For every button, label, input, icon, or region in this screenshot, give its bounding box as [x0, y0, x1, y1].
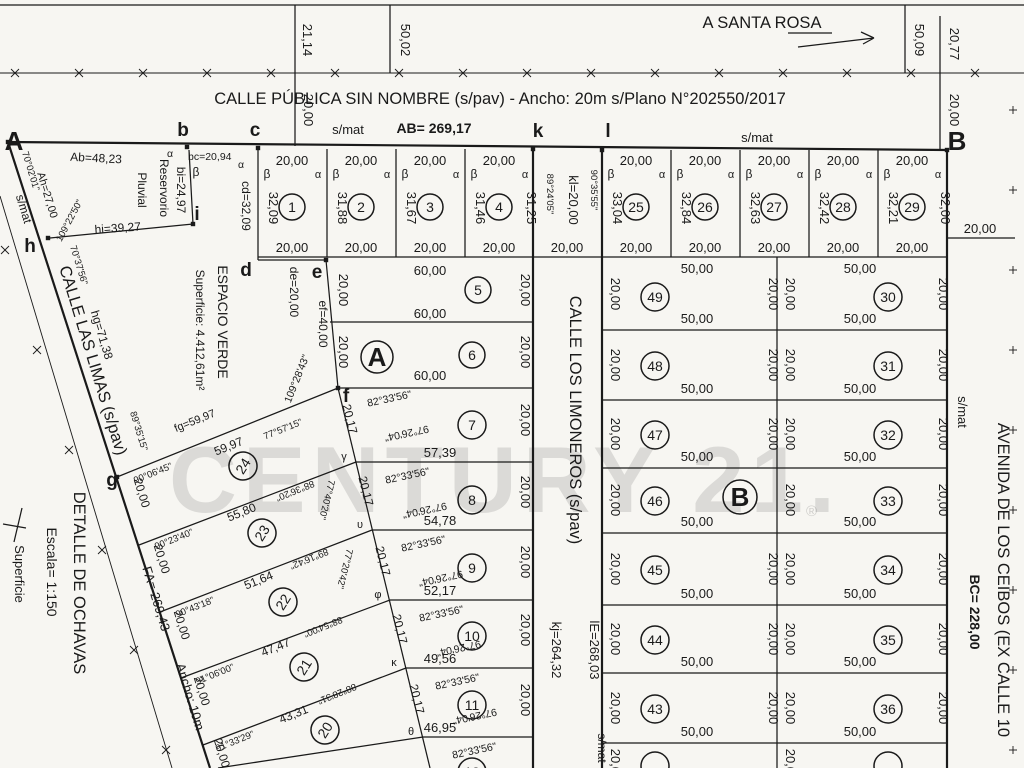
- lot-1-bottom: 20,00: [276, 240, 309, 255]
- lot-48-left-depth: 20,00: [608, 349, 623, 382]
- lot-27-beta: β: [746, 167, 753, 181]
- lot-35-number: 35: [880, 632, 896, 648]
- street-title-calle-publica: CALLE PÚBLICA SIN NOMBRE (s/pav) - Ancho…: [214, 89, 786, 108]
- lot-31-right-depth: 20,00: [936, 349, 951, 382]
- lot-35-left-depth: 20,00: [783, 623, 798, 656]
- lot-10-left-side: 20,17: [389, 613, 410, 646]
- lot-25-bottom: 20,00: [620, 240, 653, 255]
- point-A: A: [5, 126, 24, 156]
- lot-3-number: 3: [426, 199, 434, 215]
- lot-11-left-side: 20,17: [406, 683, 427, 716]
- hi-edge-length: hi=39,27: [94, 219, 142, 236]
- lot-6-left-depth: 20,00: [336, 336, 351, 369]
- lot-4-beta: β: [471, 167, 478, 181]
- lot-8-right-depth: 20,00: [518, 476, 533, 509]
- lot-49-top-width: 50,00: [681, 261, 714, 276]
- dim-20-77: 20,77: [947, 28, 962, 61]
- s-mat-avenida: s/mat: [955, 396, 970, 428]
- s-mat-baseline-left: s/mat: [332, 122, 364, 137]
- lot-25-top: 20,00: [620, 153, 653, 168]
- lot-49-right-depth: 20,00: [766, 278, 781, 311]
- lot-9-number: 9: [468, 560, 476, 576]
- lot-1-alpha: α: [315, 169, 322, 181]
- lot-1-number: 1: [288, 199, 296, 215]
- point-d: d: [240, 260, 252, 281]
- vertex-theta: θ: [408, 726, 414, 738]
- lot-36-left-depth: 20,00: [783, 692, 798, 725]
- lot-32-bottom-width: 50,00: [844, 449, 877, 464]
- lot-27-number: 27: [766, 199, 782, 215]
- lot-29-beta: β: [884, 167, 891, 181]
- lot-36-bottom-width: 50,00: [844, 724, 877, 739]
- lot-28-top: 20,00: [827, 153, 860, 168]
- lot-31-bottom-width: 50,00: [844, 381, 877, 396]
- alpha-at-c: α: [238, 159, 244, 171]
- partial-row-depth-right: 20,00: [783, 749, 798, 768]
- lot-48-number: 48: [647, 358, 663, 374]
- lot-33-right-depth: 20,00: [936, 484, 951, 517]
- lot-3-alpha: α: [453, 169, 460, 181]
- lot-44-bottom-width: 50,00: [681, 654, 714, 669]
- fa-length: FA= 269,43: [139, 565, 173, 633]
- lot-49-bottom-width: 50,00: [681, 311, 714, 326]
- lot-32-number: 32: [880, 427, 896, 443]
- lot-43-bottom-width: 50,00: [681, 724, 714, 739]
- lot-3-beta: β: [402, 167, 409, 181]
- lot-27-bottom: 20,00: [758, 240, 791, 255]
- lot-22-top-length: 51,64: [242, 568, 275, 592]
- lot-7-bottom-length: 57,39: [424, 445, 457, 460]
- lot-30-bottom-width: 50,00: [844, 311, 877, 326]
- avenida-name: AVENIDA DE LOS CEIBOS (EX CALLE 10: [994, 423, 1012, 737]
- alpha-at-b: α: [167, 148, 173, 160]
- lot-32-left-depth: 20,00: [783, 418, 798, 451]
- lot-4-alpha: α: [522, 169, 529, 181]
- lot-43-right-depth: 20,00: [766, 692, 781, 725]
- lot-45-bottom-width: 50,00: [681, 586, 714, 601]
- lot-44-right-depth: 20,00: [766, 623, 781, 656]
- lot-7-right-depth: 20,00: [518, 404, 533, 437]
- lot-36-number: 36: [880, 701, 896, 717]
- lot-49-left-depth: 20,00: [608, 278, 623, 311]
- lot-26-bottom: 20,00: [689, 240, 722, 255]
- point-h: h: [24, 236, 36, 257]
- lot-43-number: 43: [647, 701, 663, 717]
- lot-9-bottom-length: 52,17: [424, 583, 457, 598]
- lot-10-number: 10: [464, 628, 480, 644]
- lot-36-right-depth: 20,00: [936, 692, 951, 725]
- espacio-verde-superficie: Superficie: 4.412,61m²: [193, 270, 207, 391]
- angle-at-g: 89°35'15": [127, 410, 149, 452]
- reservorio-name-1: Reservorio: [157, 159, 171, 217]
- street-name-las-limas: CALLE LAS LIMAS (s/pav): [55, 264, 130, 458]
- lot-35-right-depth: 20,00: [936, 623, 951, 656]
- bi-edge-length: bi=24,97: [174, 167, 188, 214]
- lot-9-right-depth: 20,00: [518, 546, 533, 579]
- lot-7-number: 7: [468, 417, 476, 433]
- lot-31-number: 31: [880, 358, 896, 374]
- avenida-de-los-ceibos: s/mat BC= 228,00 AVENIDA DE LOS CEIBOS (…: [955, 106, 1017, 754]
- lot-5-left-depth: 20,00: [336, 274, 351, 307]
- lot-5-bottom-length: 60,00: [414, 306, 447, 321]
- lot-11-angle-top: 82°33'56": [434, 671, 481, 692]
- lot-33-number: 33: [880, 493, 896, 509]
- lot-34-right-depth: 20,00: [936, 553, 951, 586]
- direction-santa-rosa: A SANTA ROSA: [703, 14, 822, 32]
- lot-29-bottom: 20,00: [896, 240, 929, 255]
- point-g: g: [106, 470, 118, 491]
- lot-26-beta: β: [677, 167, 684, 181]
- detalle-de-ochavas: DETALLE DE OCHAVAS Escala= 1:150 Superfi…: [3, 492, 88, 674]
- de-length: de=20,00: [287, 267, 301, 318]
- lot-6-right-depth: 20,00: [518, 336, 533, 369]
- watermark-registered-icon: ®: [806, 503, 817, 520]
- street-width: 20,00: [551, 240, 584, 255]
- lot-30-left-depth: 20,00: [783, 278, 798, 311]
- lot-35-bottom-width: 50,00: [844, 654, 877, 669]
- lot-33-bottom-width: 50,00: [844, 514, 877, 529]
- cadastral-plan: CENTURY 21. ® 21,14 50,02 20,00 50,09 20…: [0, 0, 1024, 768]
- street-name-limoneros: CALLE LOS LIMONEROS (s/pav): [566, 296, 584, 545]
- lot-47-right-depth: 20,00: [766, 418, 781, 451]
- outside-right-dim: 20,00: [964, 221, 997, 236]
- lot-49-number: 49: [647, 289, 663, 305]
- detalle-escala: Escala= 1:150: [44, 527, 60, 616]
- vertex-gamma: γ: [341, 451, 347, 463]
- lot-47-left-depth: 20,00: [608, 418, 623, 451]
- lot-28-number: 28: [835, 199, 851, 215]
- lot-45-number: 45: [647, 562, 663, 578]
- lot-4-top: 20,00: [483, 153, 516, 168]
- lot-9-left-side: 20,17: [372, 545, 393, 578]
- dim-50-02: 50,02: [398, 24, 413, 57]
- ab-edge-length: Ab=48,23: [70, 150, 123, 167]
- lot-45-left-depth: 20,00: [608, 553, 623, 586]
- point-i: i: [194, 204, 199, 225]
- lot-46-number: 46: [647, 493, 663, 509]
- lot-10-right-depth: 20,00: [518, 614, 533, 647]
- lot-24-street-side: 20,00: [131, 476, 153, 509]
- lot-10-angle-top: 82°33'56": [418, 603, 465, 624]
- lot-25-beta: β: [608, 167, 615, 181]
- lot-10-bottom-length: 49,56: [424, 651, 457, 666]
- lot-31-left-depth: 20,00: [783, 349, 798, 382]
- point-B: B: [948, 126, 967, 156]
- detalle-title: DETALLE DE OCHAVAS: [70, 492, 88, 674]
- lot-3-bottom: 20,00: [414, 240, 447, 255]
- bc-length: BC= 228,00: [967, 574, 983, 649]
- lot-5-right-depth: 20,00: [518, 274, 533, 307]
- lot-29-alpha: α: [935, 169, 942, 181]
- espacio-verde-title: ESPACIO VERDE: [215, 265, 231, 378]
- angle-at-f: 109°28'43": [282, 353, 312, 405]
- beta-at-b: β: [193, 165, 200, 179]
- lot-11-number: 11: [465, 697, 480, 713]
- cadastral-plan-page: CENTURY 21. ® 21,14 50,02 20,00 50,09 20…: [0, 0, 1024, 768]
- point-k: k: [533, 121, 544, 142]
- lot-33-left-depth: 20,00: [783, 484, 798, 517]
- lot-5-top-length: 60,00: [414, 263, 447, 278]
- lot-34-left-depth: 20,00: [783, 553, 798, 586]
- lot-6-bottom-length: 60,00: [414, 368, 447, 383]
- lot-20-number: 20: [314, 719, 336, 741]
- lot-26-top: 20,00: [689, 153, 722, 168]
- lot-44-left-depth: 20,00: [608, 623, 623, 656]
- lot-22-angle-inv: 89°16'42": [288, 546, 330, 571]
- lot-21-number: 21: [293, 656, 315, 678]
- lot-34-bottom-width: 50,00: [844, 586, 877, 601]
- lot-8-bottom-length: 54,78: [424, 513, 457, 528]
- le-length: lE=268,03: [587, 621, 602, 680]
- lot-45-right-depth: 20,00: [766, 553, 781, 586]
- lot-21-top-length: 47,47: [259, 635, 292, 659]
- bc-edge-length: bc=20,94: [188, 151, 232, 163]
- ab-length: AB= 269,17: [396, 120, 471, 136]
- lot-29-right-length: 32,00: [938, 192, 953, 225]
- lot-28-alpha: α: [866, 169, 873, 181]
- lot-25-alpha: α: [659, 169, 666, 181]
- reservorio-name-2: Pluvial: [135, 172, 149, 207]
- lot-46-bottom-width: 50,00: [681, 514, 714, 529]
- lot-28-bottom: 20,00: [827, 240, 860, 255]
- lot-26-number: 26: [697, 199, 713, 215]
- lot-4-right-length: 31,25: [524, 192, 539, 225]
- lot-43-left-depth: 20,00: [608, 692, 623, 725]
- vertex-upsilon: υ: [357, 519, 363, 531]
- kj-length: kj=264,32: [549, 622, 564, 679]
- lot-11-bottom-length: 46,95: [424, 720, 457, 735]
- section-b-label: B: [731, 482, 750, 512]
- detalle-superficie: Superficie: [12, 545, 27, 603]
- dim-50-09: 50,09: [912, 24, 927, 57]
- lot-34-number: 34: [880, 562, 896, 578]
- north-boundary: 21,14 50,02 20,00 50,09 20,77 20,00 A SA…: [0, 5, 1024, 150]
- lot-22-angle-f: 77°20'42": [334, 548, 355, 590]
- lot-27-alpha: α: [797, 169, 804, 181]
- s-mat-baseline-right: s/mat: [741, 130, 773, 145]
- lot-1-top: 20,00: [276, 153, 309, 168]
- lot-8-number: 8: [468, 492, 476, 508]
- ef-length: ef=40,00: [316, 300, 330, 347]
- lot-48-right-depth: 20,00: [766, 349, 781, 382]
- lot-2-number: 2: [357, 199, 365, 215]
- lot-6-number: 6: [468, 347, 476, 363]
- lot-2-top: 20,00: [345, 153, 378, 168]
- lot-46-left-depth: 20,00: [608, 484, 623, 517]
- dim-21-14: 21,14: [300, 24, 315, 57]
- section-a-label: A: [368, 342, 387, 372]
- lot-3-top: 20,00: [414, 153, 447, 168]
- kl-angle-right: 90°35'55": [588, 170, 599, 211]
- espacio-verde: i h Ab=48,23 Reservorio Pluvial bi=24,97…: [19, 148, 253, 390]
- lot-9-angle-top: 82°33'56": [400, 533, 447, 554]
- s-mat-las-limas: s/mat: [13, 193, 35, 226]
- point-e: e: [312, 262, 323, 283]
- lot-4-bottom: 20,00: [483, 240, 516, 255]
- lot-48-bottom-width: 50,00: [681, 381, 714, 396]
- lot-1-beta: β: [264, 167, 271, 181]
- lot-26-alpha: α: [728, 169, 735, 181]
- kl-angle-left: 89°24'05": [544, 174, 555, 215]
- cd-edge-length: cd=32,09: [239, 181, 253, 231]
- lot-12-number: 12: [464, 764, 480, 768]
- lot-47-number: 47: [647, 427, 663, 443]
- vertex-phi: φ: [374, 589, 381, 601]
- lot-21-angle-inv: 88°54'00": [302, 614, 344, 639]
- angle-at-h: 109°22'50": [54, 198, 85, 244]
- lot-22-number: 22: [272, 591, 294, 613]
- lot-29-top: 20,00: [896, 153, 929, 168]
- point-b: b: [177, 120, 189, 141]
- lot-11-right-depth: 20,00: [518, 684, 533, 717]
- baseline-ab: A b c k l B s/mat AB= 269,17 s/mat: [5, 120, 967, 156]
- partial-row-depth-left: 20,00: [608, 749, 623, 768]
- lot-47-bottom-width: 50,00: [681, 449, 714, 464]
- lot-20-top-length: 43,31: [277, 702, 310, 726]
- lot-4-number: 4: [495, 199, 503, 215]
- lot-25-number: 25: [628, 199, 644, 215]
- lot-30-number: 30: [880, 289, 896, 305]
- lot-28-beta: β: [815, 167, 822, 181]
- s-mat-limoneros: s/mat: [595, 733, 609, 763]
- point-l: l: [605, 121, 610, 142]
- kl-length: kl=20,00: [566, 175, 581, 225]
- lot-2-beta: β: [333, 167, 340, 181]
- dim-20-00-right: 20,00: [947, 94, 962, 127]
- lot-32-right-depth: 20,00: [936, 418, 951, 451]
- lot-20-angle-inv: 88°28'31": [316, 681, 358, 706]
- lot-29-number: 29: [904, 199, 920, 215]
- lot-2-bottom: 20,00: [345, 240, 378, 255]
- ochava-symbol-icon: [3, 508, 26, 542]
- lot-30-right-depth: 20,00: [936, 278, 951, 311]
- lot-44-number: 44: [647, 632, 663, 648]
- lot-27-top: 20,00: [758, 153, 791, 168]
- lot-7-angle-top: 82°33'56": [366, 388, 413, 409]
- arrow-icon: [798, 32, 874, 47]
- lot-2-alpha: α: [384, 169, 391, 181]
- point-c: c: [250, 120, 261, 141]
- lot-5-number: 5: [474, 282, 482, 298]
- lot-30-top-width: 50,00: [844, 261, 877, 276]
- vertex-kappa: κ: [391, 657, 397, 669]
